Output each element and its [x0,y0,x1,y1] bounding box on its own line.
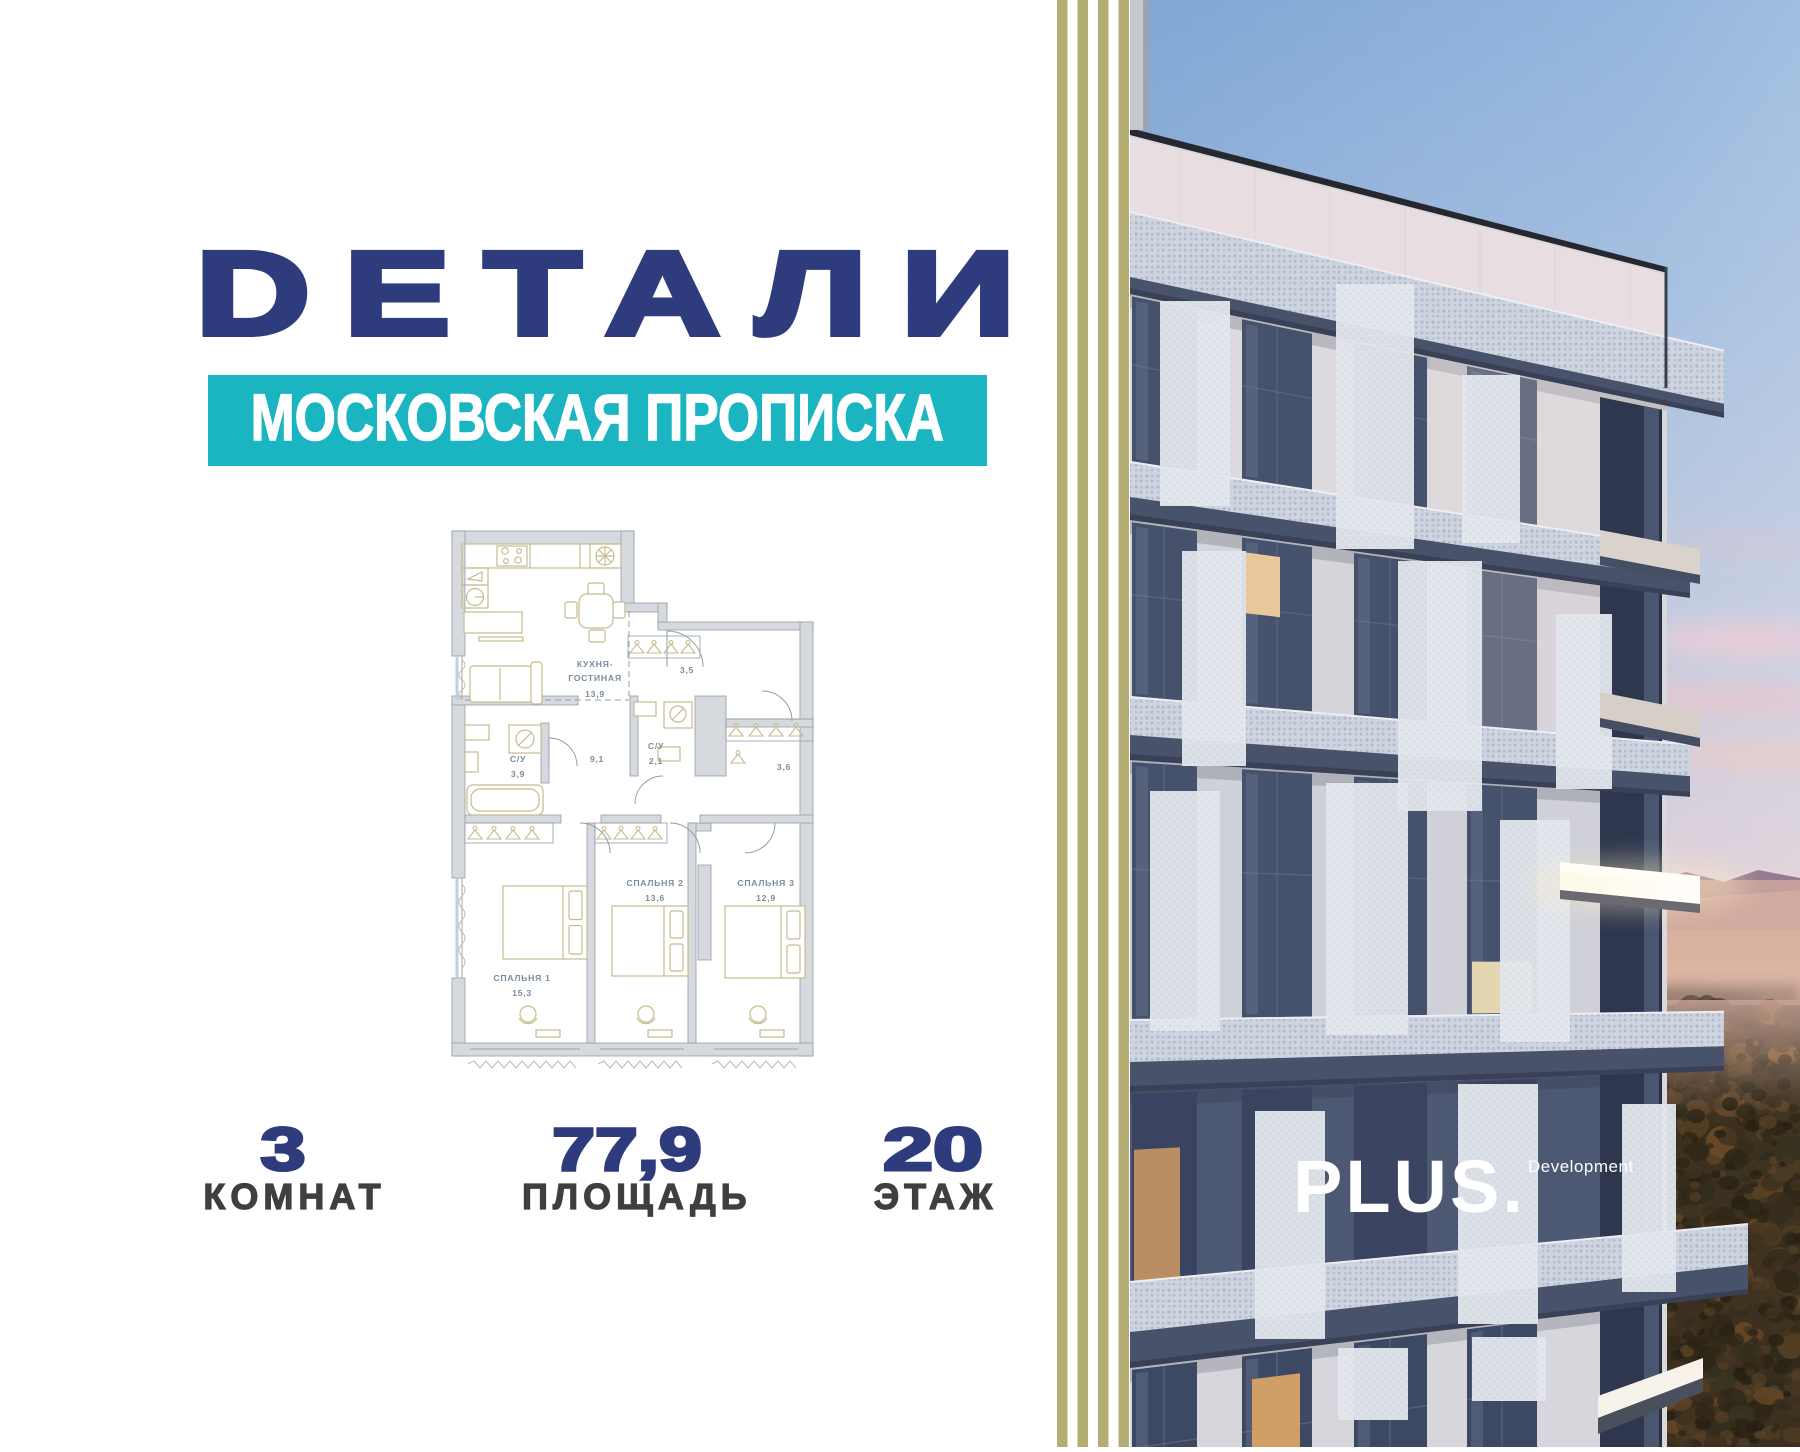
svg-text:9,1: 9,1 [590,754,604,764]
svg-text:С/У: С/У [648,741,664,751]
svg-text:12,9: 12,9 [756,893,776,903]
svg-text:PLUS.: PLUS. [1293,1145,1526,1228]
svg-text:3,6: 3,6 [777,762,791,772]
svg-text:С/У: С/У [510,754,526,764]
svg-text:3,9: 3,9 [511,769,525,779]
svg-text:2,1: 2,1 [649,756,663,766]
svg-text:13,9: 13,9 [585,689,605,699]
svg-text:СПАЛЬНЯ 3: СПАЛЬНЯ 3 [737,878,794,888]
svg-text:15,3: 15,3 [512,988,532,998]
svg-text:13,6: 13,6 [645,893,665,903]
svg-text:КУХНЯ-: КУХНЯ- [577,659,613,669]
svg-text:СПАЛЬНЯ 2: СПАЛЬНЯ 2 [626,878,683,888]
svg-text:ГОСТИНАЯ: ГОСТИНАЯ [568,673,622,683]
svg-text:СПАЛЬНЯ 1: СПАЛЬНЯ 1 [493,973,550,983]
svg-text:3,5: 3,5 [680,665,694,675]
svg-text:Development: Development [1528,1157,1634,1176]
